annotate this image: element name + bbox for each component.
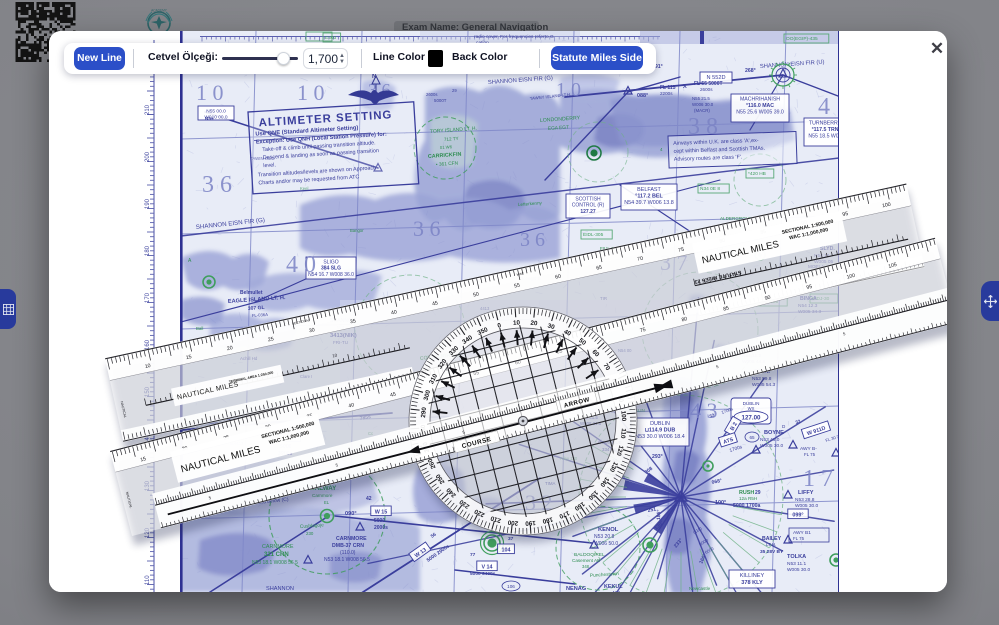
svg-text:V 14: V 14 — [481, 564, 492, 570]
svg-text:DUBLIN: DUBLIN — [650, 421, 670, 427]
svg-text:E303: E303 — [325, 35, 337, 41]
svg-text:088°: 088° — [637, 93, 648, 99]
svg-text:5000 3400s: 5000 3400s — [470, 571, 496, 577]
svg-text:°116.0 MAC: °116.0 MAC — [746, 103, 774, 109]
svg-text:W006 30.0: W006 30.0 — [692, 102, 714, 107]
svg-text:170: 170 — [145, 292, 151, 303]
svg-text:W005 30.0: W005 30.0 — [760, 443, 784, 449]
svg-text:5000T: 5000T — [434, 98, 447, 103]
svg-text:110: 110 — [145, 575, 151, 585]
svg-text:W005 30.0: W005 30.0 — [795, 503, 819, 509]
svg-text:1 0: 1 0 — [556, 79, 581, 101]
svg-text:190: 190 — [145, 198, 151, 209]
svg-text:Newcastle: Newcastle — [689, 586, 711, 591]
svg-text:4: 4 — [660, 147, 663, 152]
svg-text:CONTROL (R): CONTROL (R) — [572, 203, 605, 209]
svg-text:N55 21.5: N55 21.5 — [692, 96, 710, 101]
svg-text:°117.5 TRN: °117.5 TRN — [812, 127, 839, 133]
svg-text:127.27: 127.27 — [580, 209, 596, 215]
svg-text:65: 65 — [749, 435, 755, 440]
svg-text:099°: 099° — [792, 512, 803, 518]
svg-text:106: 106 — [507, 584, 515, 589]
svg-text:CARNMORE: CARNMORE — [262, 544, 294, 550]
svg-text:321 CRN: 321 CRN — [264, 552, 289, 558]
svg-text:348: 348 — [582, 564, 590, 569]
svg-text:2600s: 2600s — [700, 87, 713, 92]
svg-text:5000: 5000 — [374, 518, 385, 524]
svg-text:2000s: 2000s — [374, 525, 388, 531]
svg-text:SCOTTISH: SCOTTISH — [575, 197, 601, 203]
svg-text:X: X — [683, 84, 687, 90]
svg-text:Belmullet: Belmullet — [240, 290, 263, 296]
svg-text:29: 29 — [452, 88, 457, 93]
svg-text:5000 1700a: 5000 1700a — [733, 503, 761, 509]
svg-text:185°: 185° — [656, 510, 662, 521]
svg-text:KEKUL: KEKUL — [604, 584, 623, 590]
svg-text:2200s: 2200s — [660, 91, 673, 96]
svg-text:OO(EGIP)-435: OO(EGIP)-435 — [786, 36, 818, 42]
svg-text:(110.0): (110.0) — [340, 550, 356, 556]
svg-text:EL: EL — [324, 500, 330, 505]
svg-text:LT.H.: LT.H. — [766, 542, 776, 547]
svg-text:*420 HB: *420 HB — [748, 171, 766, 177]
svg-text:77: 77 — [470, 552, 476, 558]
svg-text:Casement AB: Casement AB — [572, 558, 600, 563]
svg-text:210: 210 — [145, 104, 151, 115]
svg-text:1 7: 1 7 — [803, 466, 833, 492]
svg-text:110: 110 — [619, 428, 627, 439]
svg-text:3 6: 3 6 — [520, 229, 545, 251]
svg-text:N53 46.0: N53 46.0 — [760, 437, 780, 443]
svg-text:35 28V BY: 35 28V BY — [760, 549, 784, 555]
svg-text:W 15: W 15 — [375, 509, 388, 515]
svg-text:307 GL: 307 GL — [248, 305, 265, 312]
svg-text:FL 75: FL 75 — [804, 452, 816, 457]
svg-text:W005 30.0: W005 30.0 — [787, 567, 811, 573]
svg-text:N55 00.0: N55 00.0 — [206, 108, 226, 114]
svg-text:°117.2 BEL: °117.2 BEL — [635, 194, 663, 200]
svg-text:1 0: 1 0 — [196, 80, 224, 105]
svg-text:BELFAST: BELFAST — [637, 187, 661, 193]
svg-text:29: 29 — [755, 490, 761, 496]
svg-text:3 6: 3 6 — [413, 216, 441, 241]
svg-text:⊔114.9 DUB: ⊔114.9 DUB — [645, 428, 676, 434]
svg-text:N53 18.1 W008 56.5: N53 18.1 W008 56.5 — [324, 557, 370, 563]
svg-text:200: 200 — [507, 518, 519, 526]
svg-text:4 0: 4 0 — [286, 252, 316, 278]
svg-text:SHANNON: SHANNON — [266, 586, 294, 592]
svg-text:420: 420 — [612, 590, 620, 592]
svg-text:01 W6: 01 W6 — [440, 144, 453, 150]
svg-text:N54 39.7 W006 13.8: N54 39.7 W006 13.8 — [624, 200, 673, 206]
svg-text:100°: 100° — [715, 500, 726, 506]
svg-text:180: 180 — [145, 245, 151, 256]
svg-text:290: 290 — [420, 406, 428, 418]
svg-text:N5s: N5s — [205, 116, 214, 121]
svg-text:104: 104 — [502, 547, 511, 553]
svg-text:NENAG: NENAG — [566, 586, 586, 592]
svg-text:100: 100 — [619, 410, 627, 421]
svg-text:SLIGO: SLIGO — [323, 260, 338, 266]
svg-text:KENOL: KENOL — [598, 527, 619, 533]
svg-text:Ball: Ball — [196, 326, 203, 331]
svg-text:MACHRIHANISH: MACHRIHANISH — [740, 97, 780, 103]
svg-text:230: 230 — [306, 531, 314, 536]
svg-text:radio cover. For frequencies r: radio cover. For frequencies referto G — [474, 34, 554, 40]
svg-text:level.: level. — [263, 162, 276, 169]
svg-text:200: 200 — [145, 151, 151, 162]
svg-text:FL 75: FL 75 — [793, 536, 805, 541]
svg-text:CARNMORE: CARNMORE — [336, 536, 367, 542]
svg-text:N55 18.5 W00: N55 18.5 W00 — [808, 134, 841, 140]
svg-text:TOLKA: TOLKA — [787, 554, 806, 560]
svg-text:268°: 268° — [745, 68, 756, 74]
svg-text:293°: 293° — [652, 454, 663, 460]
svg-text:712 TY: 712 TY — [444, 136, 459, 142]
svg-text:DMB-37 CRN: DMB-37 CRN — [332, 543, 364, 549]
svg-text:(MACR): (MACR) — [694, 108, 710, 113]
svg-text:Bangor: Bangor — [350, 228, 364, 233]
svg-text:WX: WX — [748, 406, 755, 411]
svg-text:384 SLG: 384 SLG — [321, 266, 341, 272]
svg-text:EIDL-305: EIDL-305 — [583, 232, 604, 238]
svg-text:KILLINEY: KILLINEY — [740, 573, 765, 579]
svg-text:N: N — [372, 74, 376, 80]
svg-text:BOYNE: BOYNE — [764, 430, 784, 436]
svg-text:TURNBERRY: TURNBERRY — [809, 121, 842, 127]
svg-text:N53 11.1: N53 11.1 — [787, 561, 806, 567]
svg-text:N53 18.1 W008 56.5: N53 18.1 W008 56.5 — [252, 560, 298, 566]
svg-text:3 6: 3 6 — [202, 172, 232, 198]
svg-text:N53 20.8: N53 20.8 — [594, 534, 615, 540]
svg-text:N53 28.8: N53 28.8 — [795, 497, 815, 503]
svg-text:N34 0E 8: N34 0E 8 — [700, 186, 720, 192]
svg-text:N55 25.6 W005 39.0: N55 25.6 W005 39.0 — [736, 110, 784, 116]
svg-text:127.00: 127.00 — [742, 415, 761, 422]
svg-text:12a R5H: 12a R5H — [739, 496, 757, 501]
svg-text:N53 30.0 W006 18.4: N53 30.0 W006 18.4 — [635, 434, 684, 440]
svg-text:ACADEMY: ACADEMY — [151, 9, 168, 13]
svg-text:42: 42 — [366, 496, 372, 502]
svg-text:190: 190 — [524, 519, 535, 527]
svg-text:090°: 090° — [345, 511, 357, 517]
svg-text:1 0: 1 0 — [297, 80, 325, 105]
svg-text:2600s: 2600s — [426, 92, 437, 97]
svg-text:378 KLY: 378 KLY — [741, 580, 763, 586]
svg-text:20: 20 — [530, 320, 538, 328]
svg-text:3 8: 3 8 — [688, 114, 718, 140]
svg-text:4 3: 4 3 — [690, 398, 718, 423]
